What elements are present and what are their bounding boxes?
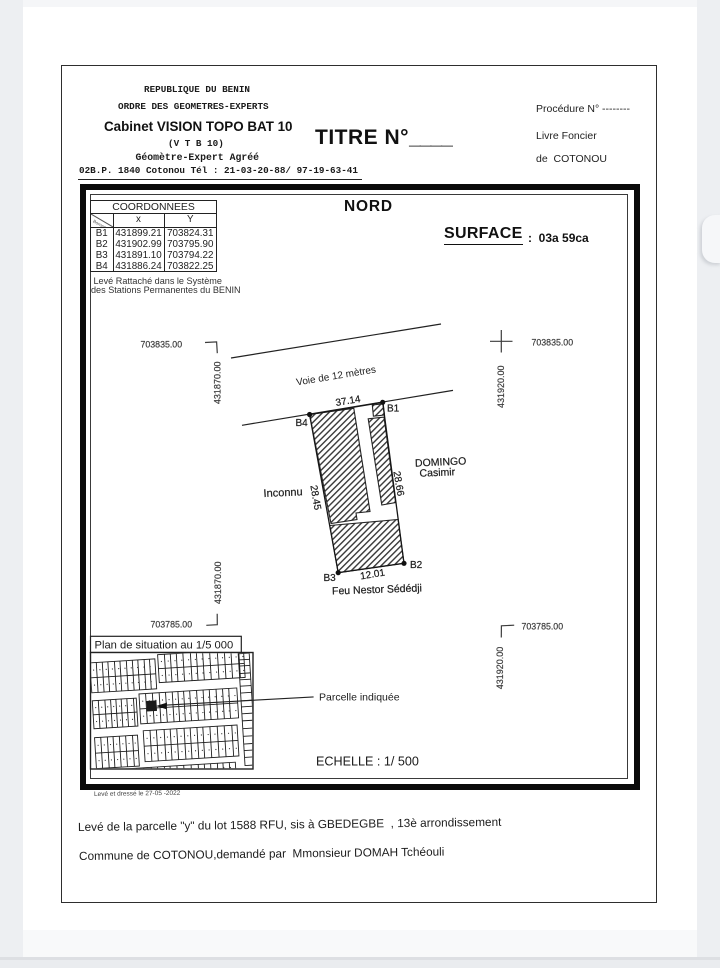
svg-text:Plan de situation au 1/5 000: Plan de situation au 1/5 000 — [95, 640, 234, 652]
svg-text:431870.00: 431870.00 — [213, 362, 223, 405]
svg-text:703785.00: 703785.00 — [522, 622, 564, 632]
svg-text:Voie de 12 mètres: Voie de 12 mètres — [295, 365, 376, 389]
svg-text:ECHELLE : 1/ 500: ECHELLE : 1/ 500 — [316, 755, 419, 769]
svg-text:431920.00: 431920.00 — [496, 365, 506, 408]
svg-text:B2: B2 — [410, 560, 423, 571]
svg-text:703835.00: 703835.00 — [532, 338, 574, 348]
svg-text:28.45: 28.45 — [307, 484, 322, 511]
svg-text:B1: B1 — [387, 404, 400, 415]
svg-text:B4: B4 — [296, 418, 309, 429]
svg-text:703835.00: 703835.00 — [141, 340, 183, 350]
svg-text:431870.00: 431870.00 — [213, 562, 223, 605]
svg-text:Inconnu: Inconnu — [263, 486, 303, 500]
svg-text:Casimir: Casimir — [419, 466, 456, 480]
svg-text:Feu Nestor Sédédji: Feu Nestor Sédédji — [332, 582, 422, 597]
svg-text:703785.00: 703785.00 — [151, 620, 193, 630]
svg-text:431920.00: 431920.00 — [495, 647, 505, 690]
svg-text:Parcelle indiquée: Parcelle indiquée — [319, 692, 400, 704]
svg-text:B3: B3 — [324, 573, 337, 584]
